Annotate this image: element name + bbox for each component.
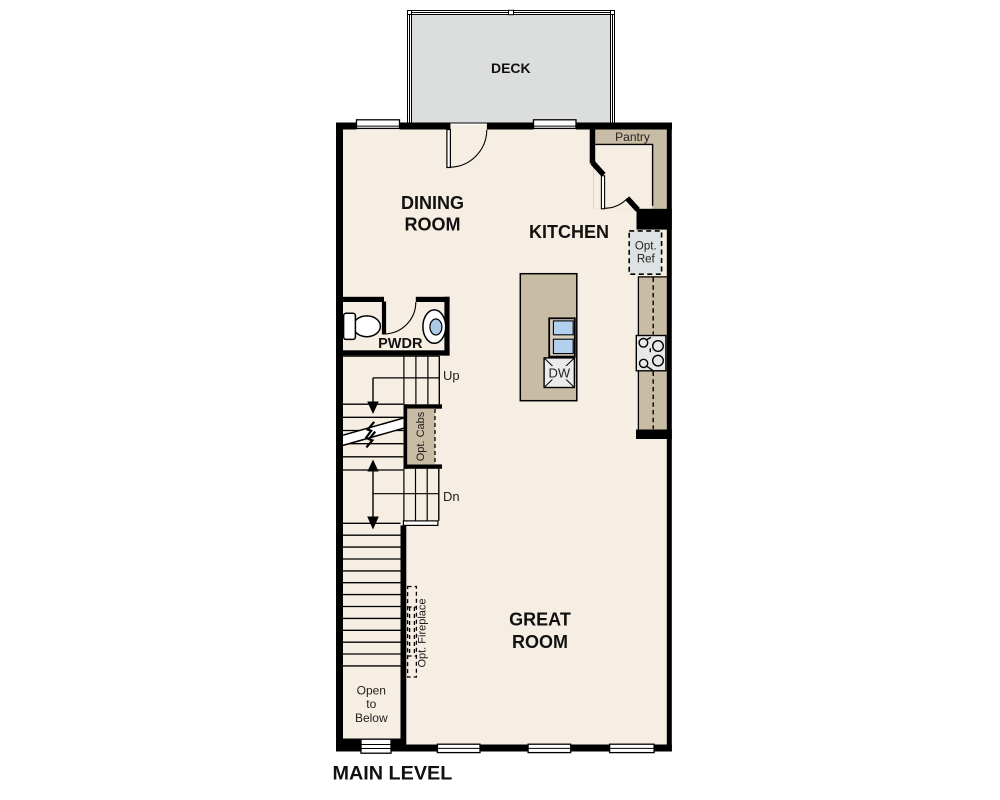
svg-text:Open: Open: [357, 683, 386, 697]
svg-text:PWDR: PWDR: [378, 336, 423, 352]
svg-text:KITCHEN: KITCHEN: [529, 222, 609, 242]
svg-text:to: to: [366, 697, 376, 711]
svg-text:DW: DW: [548, 366, 570, 381]
svg-text:Opt.: Opt.: [635, 241, 657, 253]
svg-text:ROOM: ROOM: [512, 632, 568, 652]
svg-text:Dn: Dn: [443, 489, 460, 504]
svg-text:Pantry: Pantry: [615, 130, 650, 144]
svg-text:Opt. Cabs: Opt. Cabs: [415, 411, 427, 461]
svg-text:MAIN LEVEL: MAIN LEVEL: [333, 763, 453, 785]
svg-text:DINING: DINING: [401, 193, 464, 213]
svg-text:ROOM: ROOM: [405, 215, 461, 235]
svg-text:DECK: DECK: [491, 60, 531, 76]
svg-text:Up: Up: [443, 368, 460, 383]
svg-text:Below: Below: [355, 711, 388, 725]
svg-text:Ref: Ref: [637, 254, 656, 266]
svg-text:GREAT: GREAT: [509, 609, 571, 629]
svg-text:Opt. Fireplace: Opt. Fireplace: [417, 598, 429, 667]
